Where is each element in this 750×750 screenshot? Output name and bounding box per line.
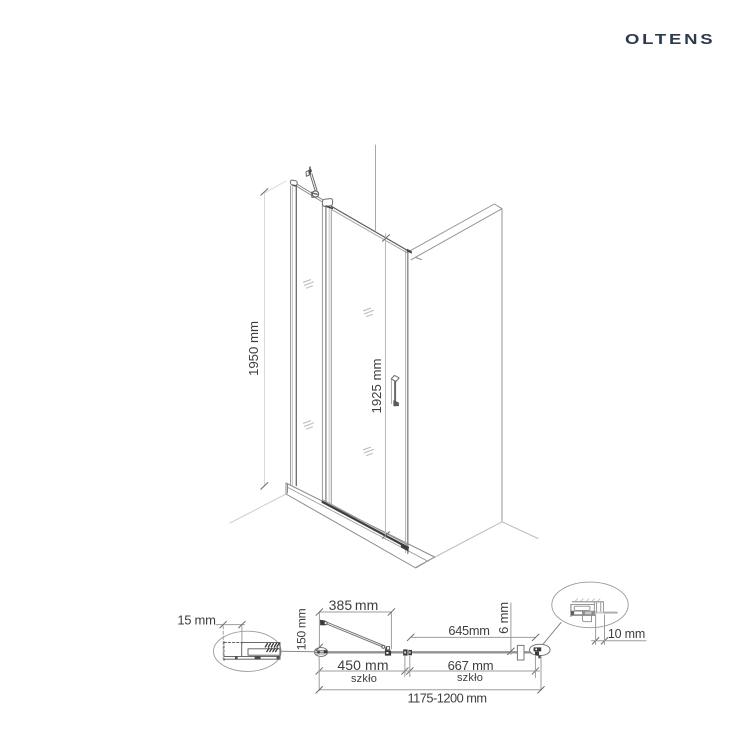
svg-text:szkło: szkło bbox=[351, 673, 377, 685]
svg-text:385 mm: 385 mm bbox=[329, 597, 379, 613]
svg-text:6 mm: 6 mm bbox=[496, 602, 511, 634]
svg-text:150 mm: 150 mm bbox=[295, 608, 309, 650]
svg-text:645mm: 645mm bbox=[448, 623, 489, 638]
svg-text:szkło: szkło bbox=[457, 672, 483, 684]
svg-text:1925 mm: 1925 mm bbox=[369, 359, 384, 414]
svg-text:15 mm: 15 mm bbox=[177, 613, 215, 628]
svg-text:1175-1200 mm: 1175-1200 mm bbox=[407, 691, 486, 706]
svg-text:10 mm: 10 mm bbox=[608, 627, 645, 641]
svg-text:1950 mm: 1950 mm bbox=[246, 321, 261, 376]
svg-text:450 mm: 450 mm bbox=[337, 657, 388, 673]
